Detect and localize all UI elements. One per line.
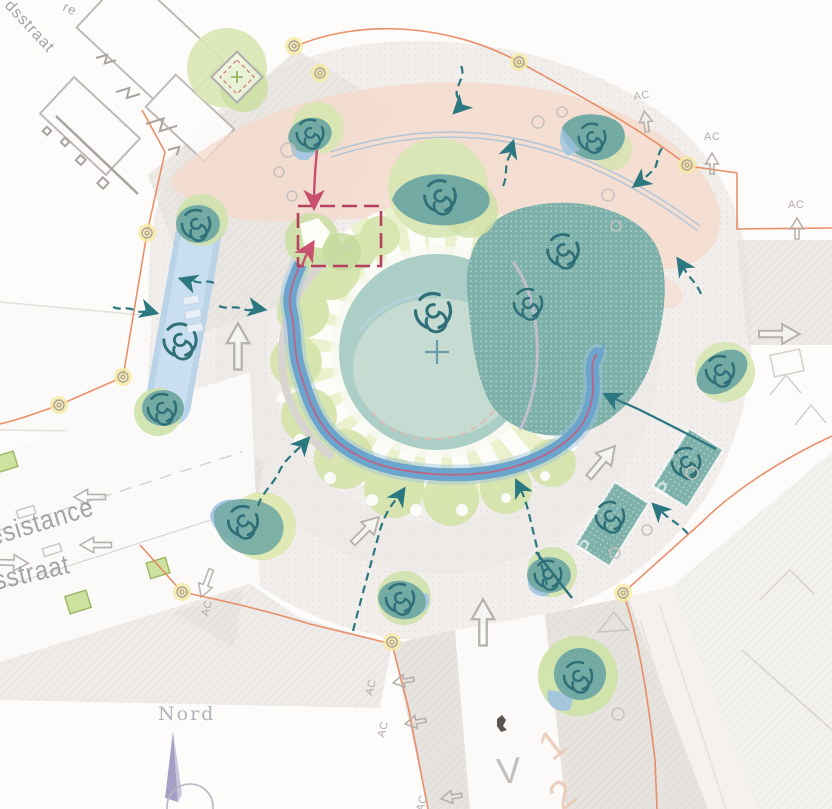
- site-plan-canvas: P P: [0, 0, 832, 809]
- faint-buildings-right: [770, 349, 826, 425]
- site-plan-map: P P: [0, 0, 832, 809]
- compass: Nord: [158, 703, 215, 809]
- street-label-fragment: re: [61, 0, 80, 18]
- tree-symbol: [176, 194, 228, 246]
- road-marking-v: V: [495, 749, 522, 792]
- ac-label: AC: [633, 89, 651, 103]
- street-label-dsstraat: dsstraat: [1, 0, 58, 56]
- ac-label: AC: [375, 720, 391, 739]
- ac-label: AC: [788, 199, 804, 211]
- ac-label: AC: [704, 131, 720, 143]
- compass-label: Nord: [158, 703, 215, 725]
